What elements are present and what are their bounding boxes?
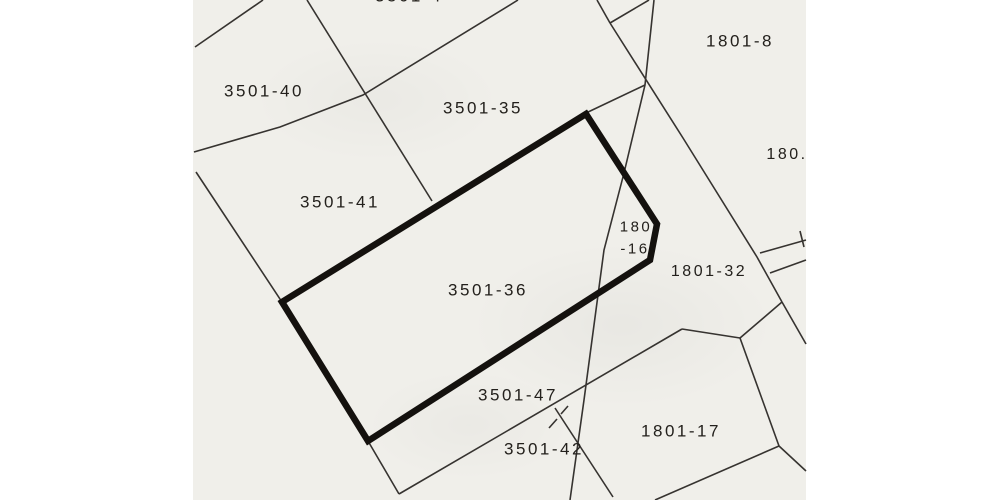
parcel-label-180-clipped-right: 180.	[766, 147, 807, 163]
boundary-line	[194, 0, 518, 152]
boundary-line	[399, 329, 682, 494]
parcel-label-3501-35: 3501-35	[443, 100, 523, 117]
boundary-line	[195, 0, 263, 47]
boundary-line	[307, 0, 432, 201]
boundary-line	[655, 446, 779, 500]
cadastral-map-screenshot: 3501-43501-403501-353501-413501-363501-4…	[0, 0, 1000, 500]
parcel-label-3501-41: 3501-41	[300, 194, 380, 211]
boundary-line	[760, 240, 806, 253]
boundary-line	[770, 260, 806, 273]
boundary-line	[782, 302, 806, 344]
parcel-label-1801-16-line1: 180	[620, 220, 653, 235]
parcel-boundary-drawing	[0, 0, 1000, 500]
boundary-line	[740, 302, 782, 338]
boundary-line	[800, 231, 804, 247]
boundary-line	[740, 338, 779, 446]
dashed-tick	[549, 419, 557, 428]
dashed-tick	[561, 406, 568, 414]
parcel-label-3501-40: 3501-40	[224, 83, 304, 100]
boundary-line	[779, 446, 806, 471]
parcel-label-3501-42: 3501-42	[504, 441, 584, 458]
boundary-line	[597, 0, 610, 23]
parcel-label-3501-36: 3501-36	[448, 282, 528, 299]
parcel-label-1801-16-line2: -16	[620, 242, 649, 257]
parcel-label-3501-4-clipped-top: 3501-4	[375, 0, 443, 5]
parcel-label-3501-47: 3501-47	[478, 387, 558, 404]
boundary-line	[682, 329, 740, 338]
boundary-line	[610, 23, 782, 302]
boundary-line	[610, 0, 649, 23]
boundary-line	[586, 85, 645, 113]
parcel-label-1801-8: 1801-8	[706, 33, 774, 50]
parcel-label-1801-32: 1801-32	[671, 264, 747, 280]
parcel-label-1801-17: 1801-17	[641, 423, 721, 440]
